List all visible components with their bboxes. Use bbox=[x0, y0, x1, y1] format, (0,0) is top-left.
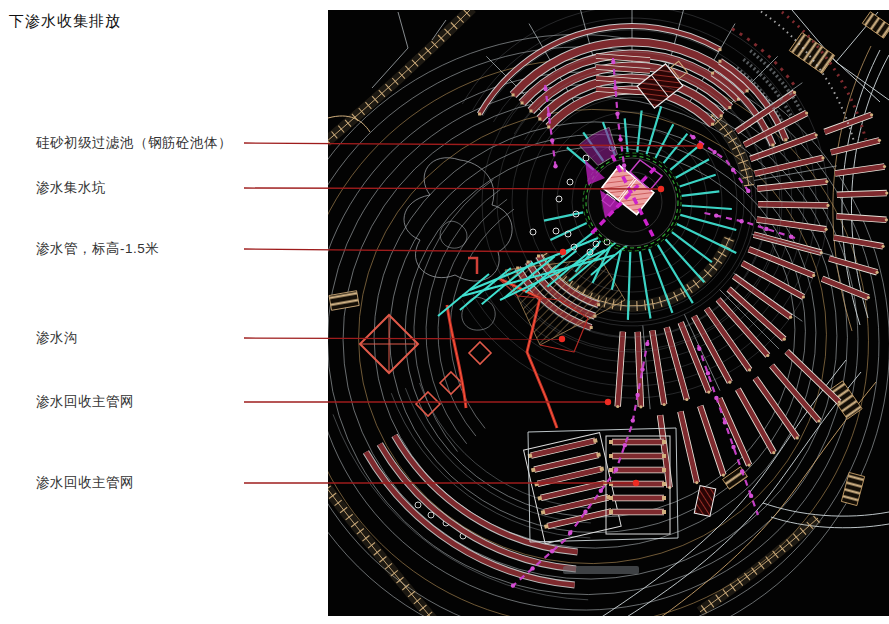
leader-dot-3 bbox=[560, 249, 566, 255]
illegible-cad-text bbox=[563, 566, 639, 574]
leader-dot-2 bbox=[658, 186, 664, 192]
leader-dot-6 bbox=[633, 480, 639, 486]
cad-site-plan bbox=[0, 0, 889, 624]
leader-dot-4 bbox=[559, 336, 565, 342]
leader-dot-5 bbox=[605, 399, 611, 405]
leader-dot-1 bbox=[697, 143, 703, 149]
